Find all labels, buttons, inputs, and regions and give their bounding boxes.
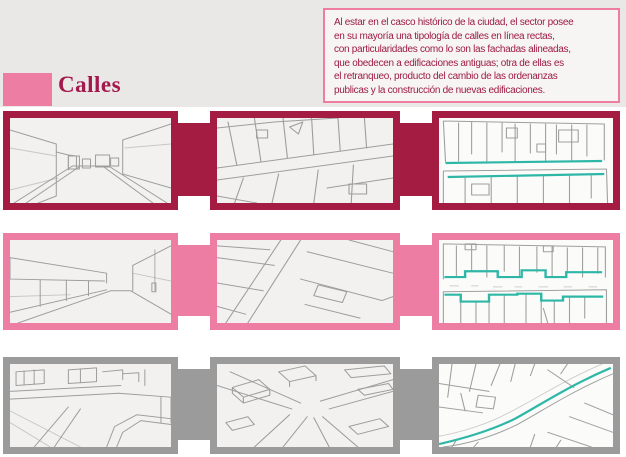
panel-street-route-map [432, 357, 620, 454]
connector-bar [400, 245, 432, 316]
panel-setback-facades-plan [432, 233, 620, 330]
page: Calles Al estar en el casco histórico de… [0, 0, 626, 457]
panel-street-perspective [3, 233, 178, 330]
connector-bar [400, 123, 432, 196]
panel-aligned-facades-plan [432, 111, 620, 210]
panel-street-plan [210, 233, 400, 330]
street-plan-sketch [217, 240, 393, 323]
street-plan-sketch [217, 118, 393, 203]
street-perspective-sketch [10, 118, 171, 203]
connector-bar [178, 123, 210, 196]
page-title: Calles [58, 72, 121, 98]
connector-bar [178, 245, 210, 316]
row-interseccion [0, 357, 626, 454]
intro-line: el retranqueo, producto del cambio de la… [334, 70, 610, 84]
street-perspective-sketch [10, 364, 171, 447]
intro-line: que obedecen a edificaciones antiguas; o… [334, 57, 610, 71]
setback-facades-plan-sketch [439, 240, 613, 323]
row-retranqueo [0, 233, 626, 330]
panel-street-perspective [3, 111, 178, 210]
intro-line: en su mayoría una tipología de calles en… [334, 30, 610, 44]
panel-intersection-axonometric [210, 357, 400, 454]
intersection-axonometric-sketch [217, 364, 393, 447]
intro-text-box: Al estar en el casco histórico de la ciu… [323, 8, 620, 103]
aligned-facades-plan-sketch [439, 118, 613, 203]
street-route-map-sketch [439, 364, 613, 447]
connector-bar [400, 369, 432, 440]
title-accent-square [3, 73, 52, 106]
row-aligned-facades [0, 111, 626, 210]
connector-bar [178, 369, 210, 440]
intro-line: Al estar en el casco histórico de la ciu… [334, 16, 610, 30]
panel-street-plan [210, 111, 400, 210]
street-perspective-sketch [10, 240, 171, 323]
intro-line: con particularidades como lo son las fac… [334, 43, 610, 57]
panel-street-perspective [3, 357, 178, 454]
intro-line: publicas y la construcción de nuevas edi… [334, 84, 610, 98]
header-band: Calles Al estar en el casco histórico de… [0, 0, 626, 107]
